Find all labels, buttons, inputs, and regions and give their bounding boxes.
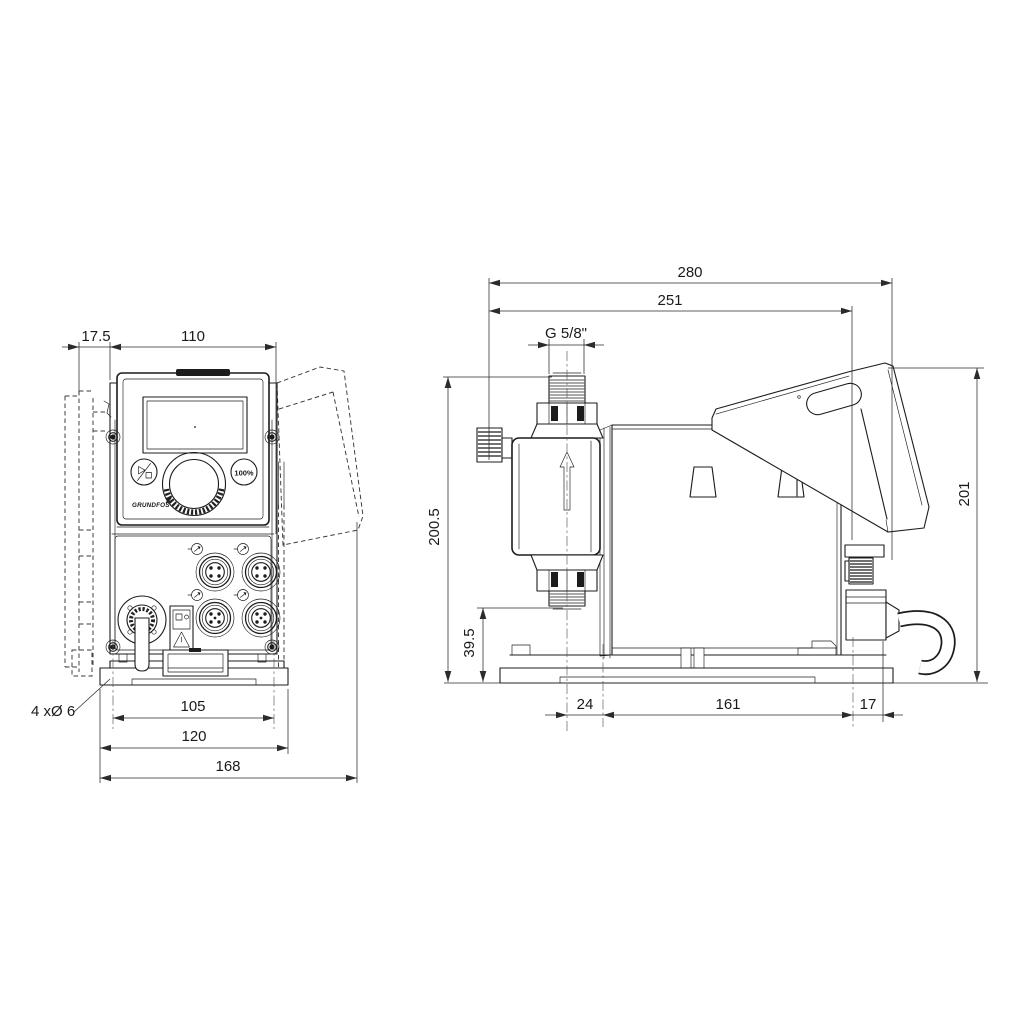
dim-valve-to-front-hole: 24 — [577, 696, 594, 713]
dim-plate-width: 120 — [181, 728, 206, 745]
dim-overall-length: 280 — [677, 264, 702, 281]
drawing-page: 100% GRUNDFOS — [0, 0, 1024, 1024]
technical-drawing: 100% GRUNDFOS — [0, 0, 1024, 1024]
front-view: 100% GRUNDFOS — [65, 367, 363, 685]
panel-top-tab — [176, 369, 230, 376]
svg-text:GRUNDFOS: GRUNDFOS — [132, 502, 170, 509]
capacity-button-label: 100% — [234, 469, 254, 478]
warning-label — [170, 606, 193, 651]
dim-overall-depth: 168 — [215, 758, 240, 775]
connector-center-pin — [214, 617, 217, 620]
priming-knob[interactable] — [477, 428, 512, 462]
power-cable-front — [135, 618, 149, 671]
hidden-control-cube-projection — [277, 367, 363, 545]
connector-center-pin — [260, 617, 263, 620]
dim-overall-height: 200.5 — [426, 508, 443, 546]
dosing-head-body — [512, 438, 600, 555]
dosing-head — [477, 373, 603, 609]
dim-bracket-depth: 17.5 — [81, 328, 110, 345]
service-latch[interactable] — [163, 648, 228, 676]
side-bracket-hidden — [279, 505, 285, 668]
clamp-tab-left — [690, 467, 716, 497]
dim-hole-to-rear-edge: 17 — [860, 696, 877, 713]
side-view — [477, 363, 948, 683]
wall-bracket-hidden — [65, 391, 107, 676]
note-mounting-holes: 4 xØ 6 — [31, 703, 75, 720]
dim-length-to-rear-holes: 251 — [657, 292, 682, 309]
dim-valve-outlet-height: 39.5 — [461, 628, 478, 657]
dim-hole-spacing: 105 — [180, 698, 205, 715]
dim-rear-height: 201 — [956, 481, 973, 506]
dim-housing-width: 110 — [181, 328, 205, 345]
cable-gland-side — [846, 590, 948, 668]
control-panel: 100% GRUNDFOS — [117, 369, 269, 525]
rear-connection-stub — [845, 545, 884, 584]
dim-foot-hole-spacing: 161 — [715, 696, 740, 713]
dim-connection-thread: G 5/8" — [545, 325, 587, 342]
